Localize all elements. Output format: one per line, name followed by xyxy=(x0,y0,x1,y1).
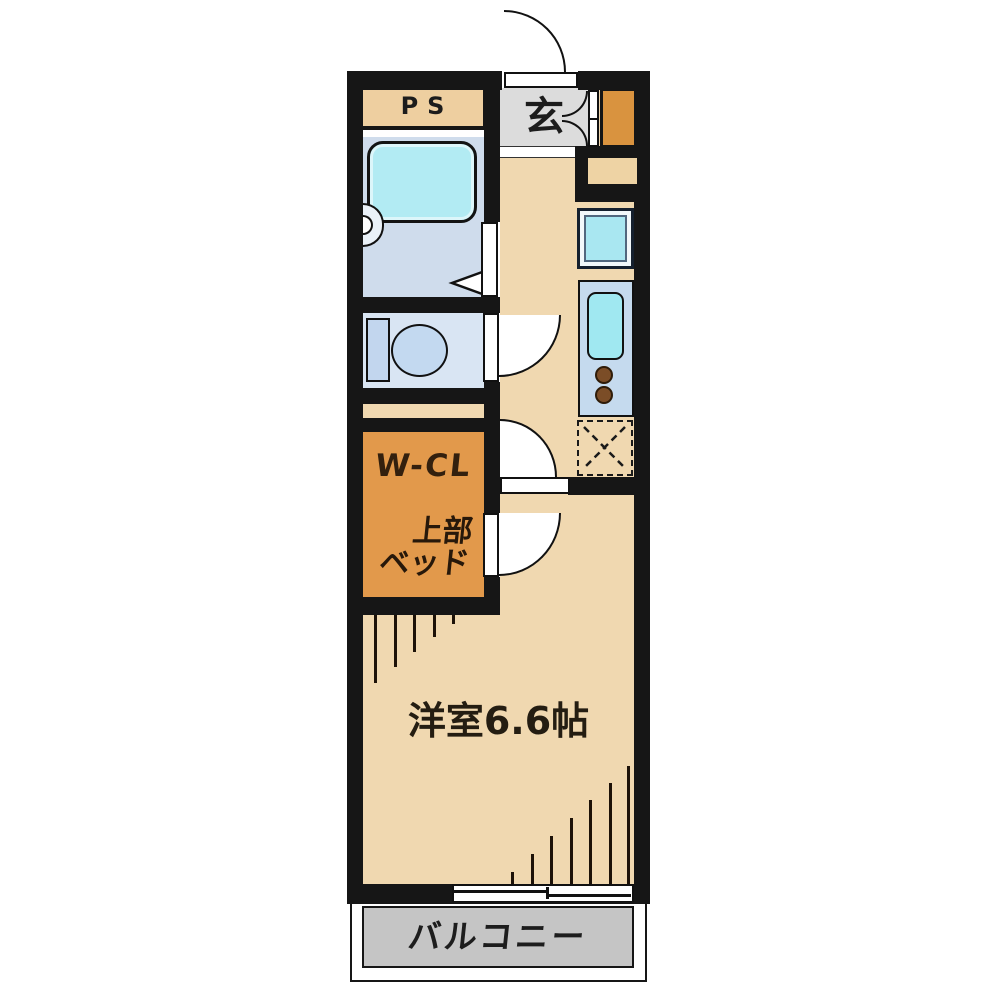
window-hatch-line xyxy=(511,872,514,884)
walk-in-closet-label: W-CL xyxy=(361,450,485,483)
window-hatch-line xyxy=(531,854,534,884)
closet-note: 上部 ベッド xyxy=(378,516,475,579)
window-hatch-line xyxy=(550,836,553,884)
toilet-bowl-icon xyxy=(391,324,448,377)
closet-note-line2: ベッド xyxy=(378,548,471,580)
pipe-space-box: PS xyxy=(358,84,487,130)
refrigerator-x-mark xyxy=(579,422,630,473)
toilet-door-leaf xyxy=(483,313,499,382)
hall-door-leaf xyxy=(500,477,570,494)
pipe-space-label: PS xyxy=(392,94,454,119)
closet-ladder-hatch-line xyxy=(452,615,455,624)
bathtub-icon xyxy=(367,141,477,223)
closet-top-wall xyxy=(347,418,500,432)
window-hatch-line xyxy=(589,800,592,884)
washing-machine-pan-icon xyxy=(577,208,634,269)
main-room-label: 洋室6.6帖 xyxy=(363,702,634,742)
floor-plan-canvas: 玄 PS W-CL 上部 ベッド xyxy=(0,0,1000,1000)
window-hatch-line xyxy=(627,766,630,884)
entrance-label: 玄 xyxy=(524,96,564,138)
bottom-wall-left xyxy=(347,884,452,904)
main-room-floor xyxy=(363,615,500,885)
sliding-window-icon xyxy=(452,884,634,903)
entrance-step xyxy=(500,146,582,158)
folding-door-panel-split xyxy=(590,118,597,120)
folding-door-panel xyxy=(588,90,599,147)
left-outer-wall xyxy=(347,71,363,884)
closet-bottom-wall xyxy=(347,597,500,615)
stove-burner-icon xyxy=(595,366,613,384)
top-wall-left xyxy=(347,71,502,90)
bathroom-door-leaf xyxy=(481,222,498,297)
entrance-door-leaf xyxy=(504,72,578,88)
closet-note-line1: 上部 xyxy=(381,516,474,548)
wall-niche-box xyxy=(588,158,637,184)
washbasin-inner-arc xyxy=(363,215,373,235)
refrigerator-space-icon xyxy=(577,420,633,476)
balcony: バルコニー xyxy=(362,906,634,968)
kitchen-sink-icon xyxy=(587,292,624,360)
hall-divider-wall-mid xyxy=(484,382,500,513)
toilet-bottom-wall xyxy=(347,388,500,404)
entrance-door-swing-icon xyxy=(504,10,566,72)
corridor-strip-floor xyxy=(363,404,484,418)
closet-ladder-hatch-line xyxy=(374,615,377,683)
window-center-tick xyxy=(546,887,549,899)
closet-ladder-hatch-line xyxy=(433,615,436,637)
closet-ladder-hatch-line xyxy=(413,615,416,652)
window-hatch-line xyxy=(570,818,573,884)
walk-in-closet: W-CL 上部 ベッド xyxy=(363,432,484,597)
stove-burner-icon xyxy=(595,386,613,404)
closet-door-leaf xyxy=(483,513,499,577)
shoe-cabinet xyxy=(600,88,637,148)
bath-toilet-wall xyxy=(347,297,500,313)
closet-ladder-hatch-line xyxy=(394,615,397,667)
window-sash-line-left xyxy=(454,890,549,893)
window-sash-line-right xyxy=(547,894,631,897)
kitchen-room-wall-stub xyxy=(568,477,650,495)
hall-divider-wall-upper xyxy=(484,88,500,222)
window-hatch-line xyxy=(609,783,612,884)
toilet-tank-icon xyxy=(366,318,390,382)
balcony-label: バルコニー xyxy=(407,920,590,955)
